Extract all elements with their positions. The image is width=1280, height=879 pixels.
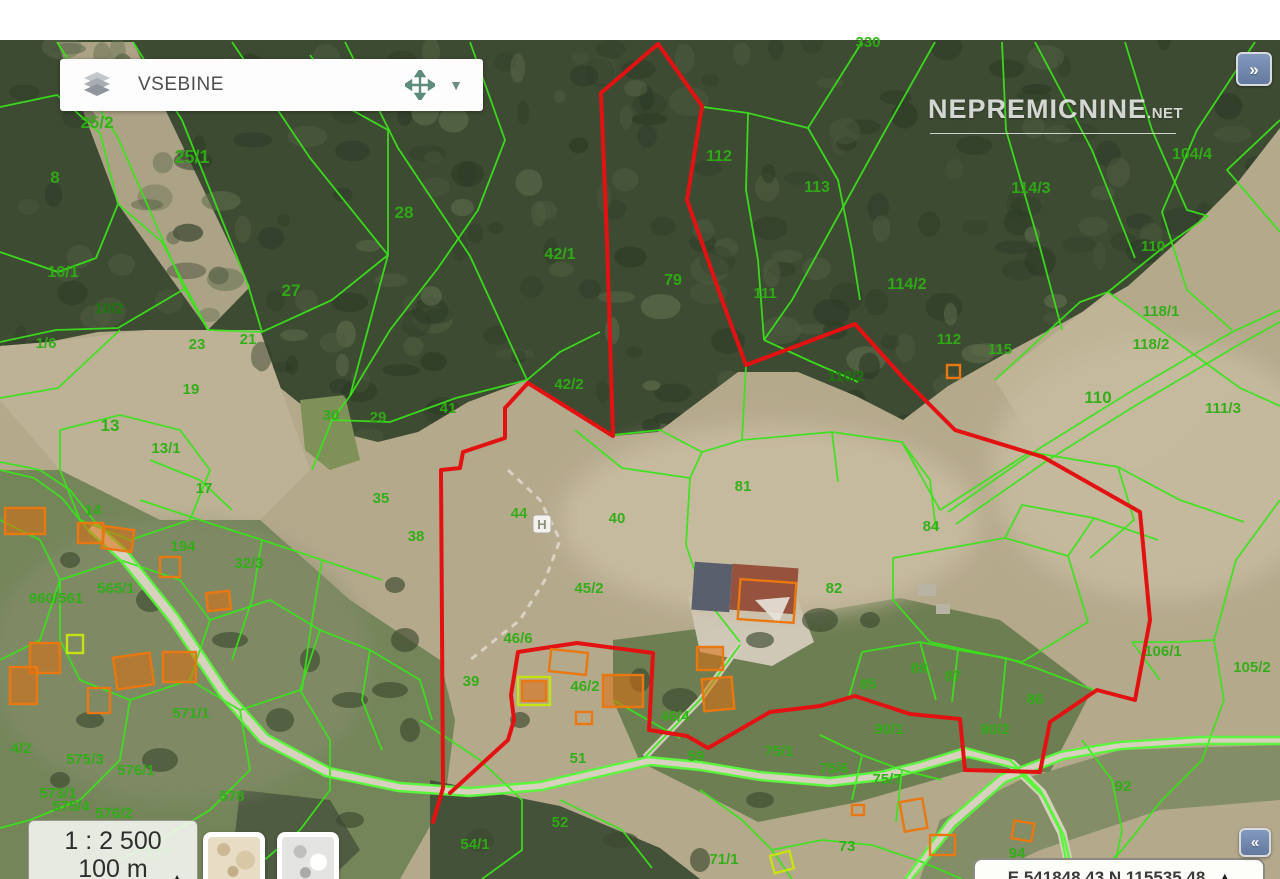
parcel-label: 84 — [923, 518, 940, 535]
map-viewer: 33025/225/182827212310/110/21/6191313/11… — [0, 0, 1280, 879]
scale-collapse-icon[interactable]: ▲ — [171, 864, 183, 879]
parcel-label: 10/2 — [94, 300, 123, 317]
parcel-label: 104/4 — [1172, 146, 1212, 163]
parcel-label: 90/1 — [874, 721, 903, 738]
scale-panel: 1 : 2 500 100 m ▲ — [28, 820, 198, 879]
parcel-label: 114/3 — [1011, 180, 1050, 197]
parcel-label: 87 — [945, 668, 962, 685]
coordinates-panel: E 541848.43 N 115535.48 ▲ — [973, 858, 1265, 879]
contents-panel[interactable]: VSEBINE ▼ — [60, 59, 483, 111]
parcel-label: 111 — [753, 285, 776, 302]
map-canvas[interactable]: 33025/225/182827212310/110/21/6191313/11… — [0, 0, 1280, 879]
parcel-label: 118/1 — [1143, 303, 1180, 320]
expand-sidebar-button[interactable]: » — [1236, 52, 1272, 86]
parcel-label: 81 — [735, 478, 752, 495]
parcel-label: 111/3 — [1205, 400, 1241, 417]
parcel-label: 71/1 — [709, 851, 738, 868]
parcel-label: 42/2 — [554, 376, 583, 393]
parcel-label: 75/1 — [764, 743, 793, 760]
parcel-label: 90/2 — [980, 721, 1009, 738]
parcel-label: 75/7 — [872, 771, 901, 788]
parcel-label: 75/6 — [819, 760, 848, 777]
hydrant-marker: H — [533, 515, 551, 533]
parcel-label: 8 — [50, 168, 59, 187]
double-chevron-right-icon: » — [1249, 61, 1258, 78]
coords-toggle-icon[interactable]: ▲ — [1219, 871, 1230, 879]
scale-bar-label: 100 m — [78, 855, 147, 879]
parcel-label: 51 — [570, 750, 587, 767]
parcel-label: 73 — [839, 838, 856, 855]
parcel-label: 112 — [937, 331, 961, 348]
parcel-label: 42/1 — [544, 246, 575, 263]
parcel-label: 21 — [240, 331, 257, 348]
parcel-label: 112 — [706, 148, 732, 165]
parcel-label: 330 — [855, 34, 880, 51]
parcel-label: 571/1 — [172, 705, 210, 722]
basemap-thumbnail-plain-preview — [282, 837, 334, 879]
parcel-label: 85 — [860, 676, 877, 693]
parcel-label: 960/561 — [29, 590, 83, 607]
basemap-thumbnail-plain[interactable] — [277, 832, 339, 879]
chevron-down-icon[interactable]: ▼ — [449, 77, 463, 93]
parcel-label: 27 — [282, 281, 301, 300]
parcel-label: 115 — [988, 341, 1012, 358]
parcel-label: 29 — [370, 409, 387, 426]
parcel-label: 40 — [609, 510, 626, 527]
parcel-label: 575/3 — [66, 751, 104, 768]
parcel-label: 10/1 — [47, 264, 78, 281]
watermark-brand: NEPREMICNINE — [928, 94, 1147, 124]
parcel-label: 1/6 — [36, 335, 57, 352]
watermark-tld: .NET — [1147, 105, 1183, 122]
parcel-label: 46/4 — [660, 708, 690, 725]
parcel-label: 28 — [395, 203, 414, 222]
move-pan-icon[interactable] — [405, 70, 435, 100]
parcel-label: 110 — [1084, 388, 1111, 407]
parcel-label: 114/2 — [887, 276, 926, 293]
parcel-label: 110 — [1141, 238, 1165, 255]
parcel-label: 118/2 — [1133, 336, 1170, 353]
parcel-label: 45/2 — [574, 580, 603, 597]
parcel-label: 194 — [170, 538, 196, 555]
basemap-thumbnail-topo[interactable] — [203, 832, 265, 879]
parcel-label: 13 — [101, 416, 120, 435]
parcel-label: 106/1 — [1144, 643, 1182, 660]
parcel-label: 565/1 — [97, 580, 135, 597]
parcel-label: 46/6 — [503, 630, 532, 647]
layers-icon — [82, 72, 112, 98]
parcel-label: 4/2 — [11, 740, 32, 757]
parcel-label: 575/4 — [52, 798, 90, 815]
parcel-label: 86 — [1027, 691, 1044, 708]
scale-ratio: 1 : 2 500 — [29, 827, 197, 855]
parcel-label: 23 — [189, 336, 206, 353]
basemap-thumbnail-topo-preview — [208, 837, 260, 879]
parcel-label: 17 — [196, 480, 213, 497]
brand-watermark: NEPREMICNINE.NET — [928, 94, 1180, 125]
parcel-label: 38 — [408, 528, 425, 545]
parcel-label: 41 — [440, 400, 457, 417]
parcel-label: 46/2 — [570, 678, 599, 695]
double-chevron-left-icon: « — [1251, 835, 1259, 850]
parcel-label: 82 — [826, 580, 843, 597]
parcel-label: 14 — [85, 502, 102, 519]
parcel-label: 105/2 — [1233, 659, 1271, 676]
coordinates-readout: E 541848.43 N 115535.48 — [1008, 868, 1206, 879]
parcel-label: 59 — [688, 748, 705, 765]
parcel-label: 25/2 — [80, 113, 113, 132]
parcel-label: 79 — [664, 272, 682, 289]
parcel-label: 35 — [373, 490, 390, 507]
parcel-label: 110/2 — [828, 368, 865, 385]
parcel-label: 30 — [323, 407, 340, 424]
parcel-label: 92 — [1115, 778, 1132, 795]
parcel-label: 25/1 — [174, 147, 209, 167]
parcel-label: 13/1 — [151, 440, 180, 457]
parcel-label: 19 — [183, 381, 200, 398]
parcel-label: 113 — [804, 179, 830, 196]
parcel-label: 576/1 — [117, 762, 155, 779]
collapse-panel-button[interactable]: « — [1239, 828, 1271, 857]
parcel-label: 32/3 — [234, 555, 263, 572]
parcel-label: 52 — [552, 814, 569, 831]
svg-text:H: H — [537, 517, 546, 532]
parcel-label: 44 — [511, 505, 528, 522]
parcel-label: 88 — [911, 660, 928, 677]
parcel-label: 54/1 — [460, 836, 489, 853]
parcel-label: 578 — [219, 788, 244, 805]
contents-panel-title: VSEBINE — [138, 74, 224, 96]
watermark-underline — [930, 133, 1176, 134]
parcel-label: 39 — [463, 673, 480, 690]
